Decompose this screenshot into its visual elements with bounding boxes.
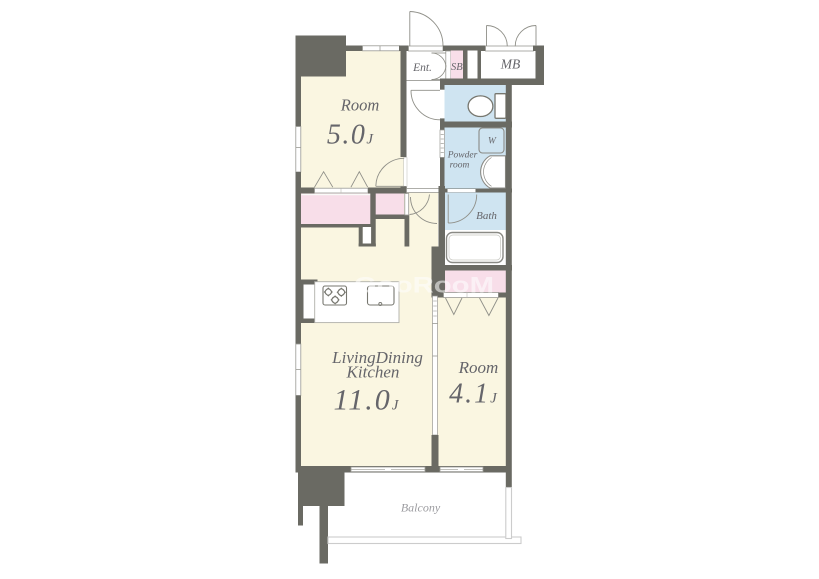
svg-text:Room: Room bbox=[458, 358, 499, 377]
svg-text:Kitchen: Kitchen bbox=[346, 363, 400, 382]
svg-text:SB: SB bbox=[451, 62, 463, 73]
svg-text:GooRooM: GooRooM bbox=[354, 273, 494, 298]
svg-text:MB: MB bbox=[500, 57, 521, 72]
svg-text:room: room bbox=[450, 161, 470, 171]
svg-text:Room: Room bbox=[340, 96, 380, 115]
svg-text:Balcony: Balcony bbox=[401, 501, 441, 515]
svg-text:Bath: Bath bbox=[476, 210, 497, 222]
svg-text:Ent.: Ent. bbox=[412, 62, 432, 74]
svg-text:Powder: Powder bbox=[447, 151, 478, 161]
svg-text:W: W bbox=[488, 137, 497, 147]
svg-text:11.0J: 11.0J bbox=[334, 383, 400, 416]
